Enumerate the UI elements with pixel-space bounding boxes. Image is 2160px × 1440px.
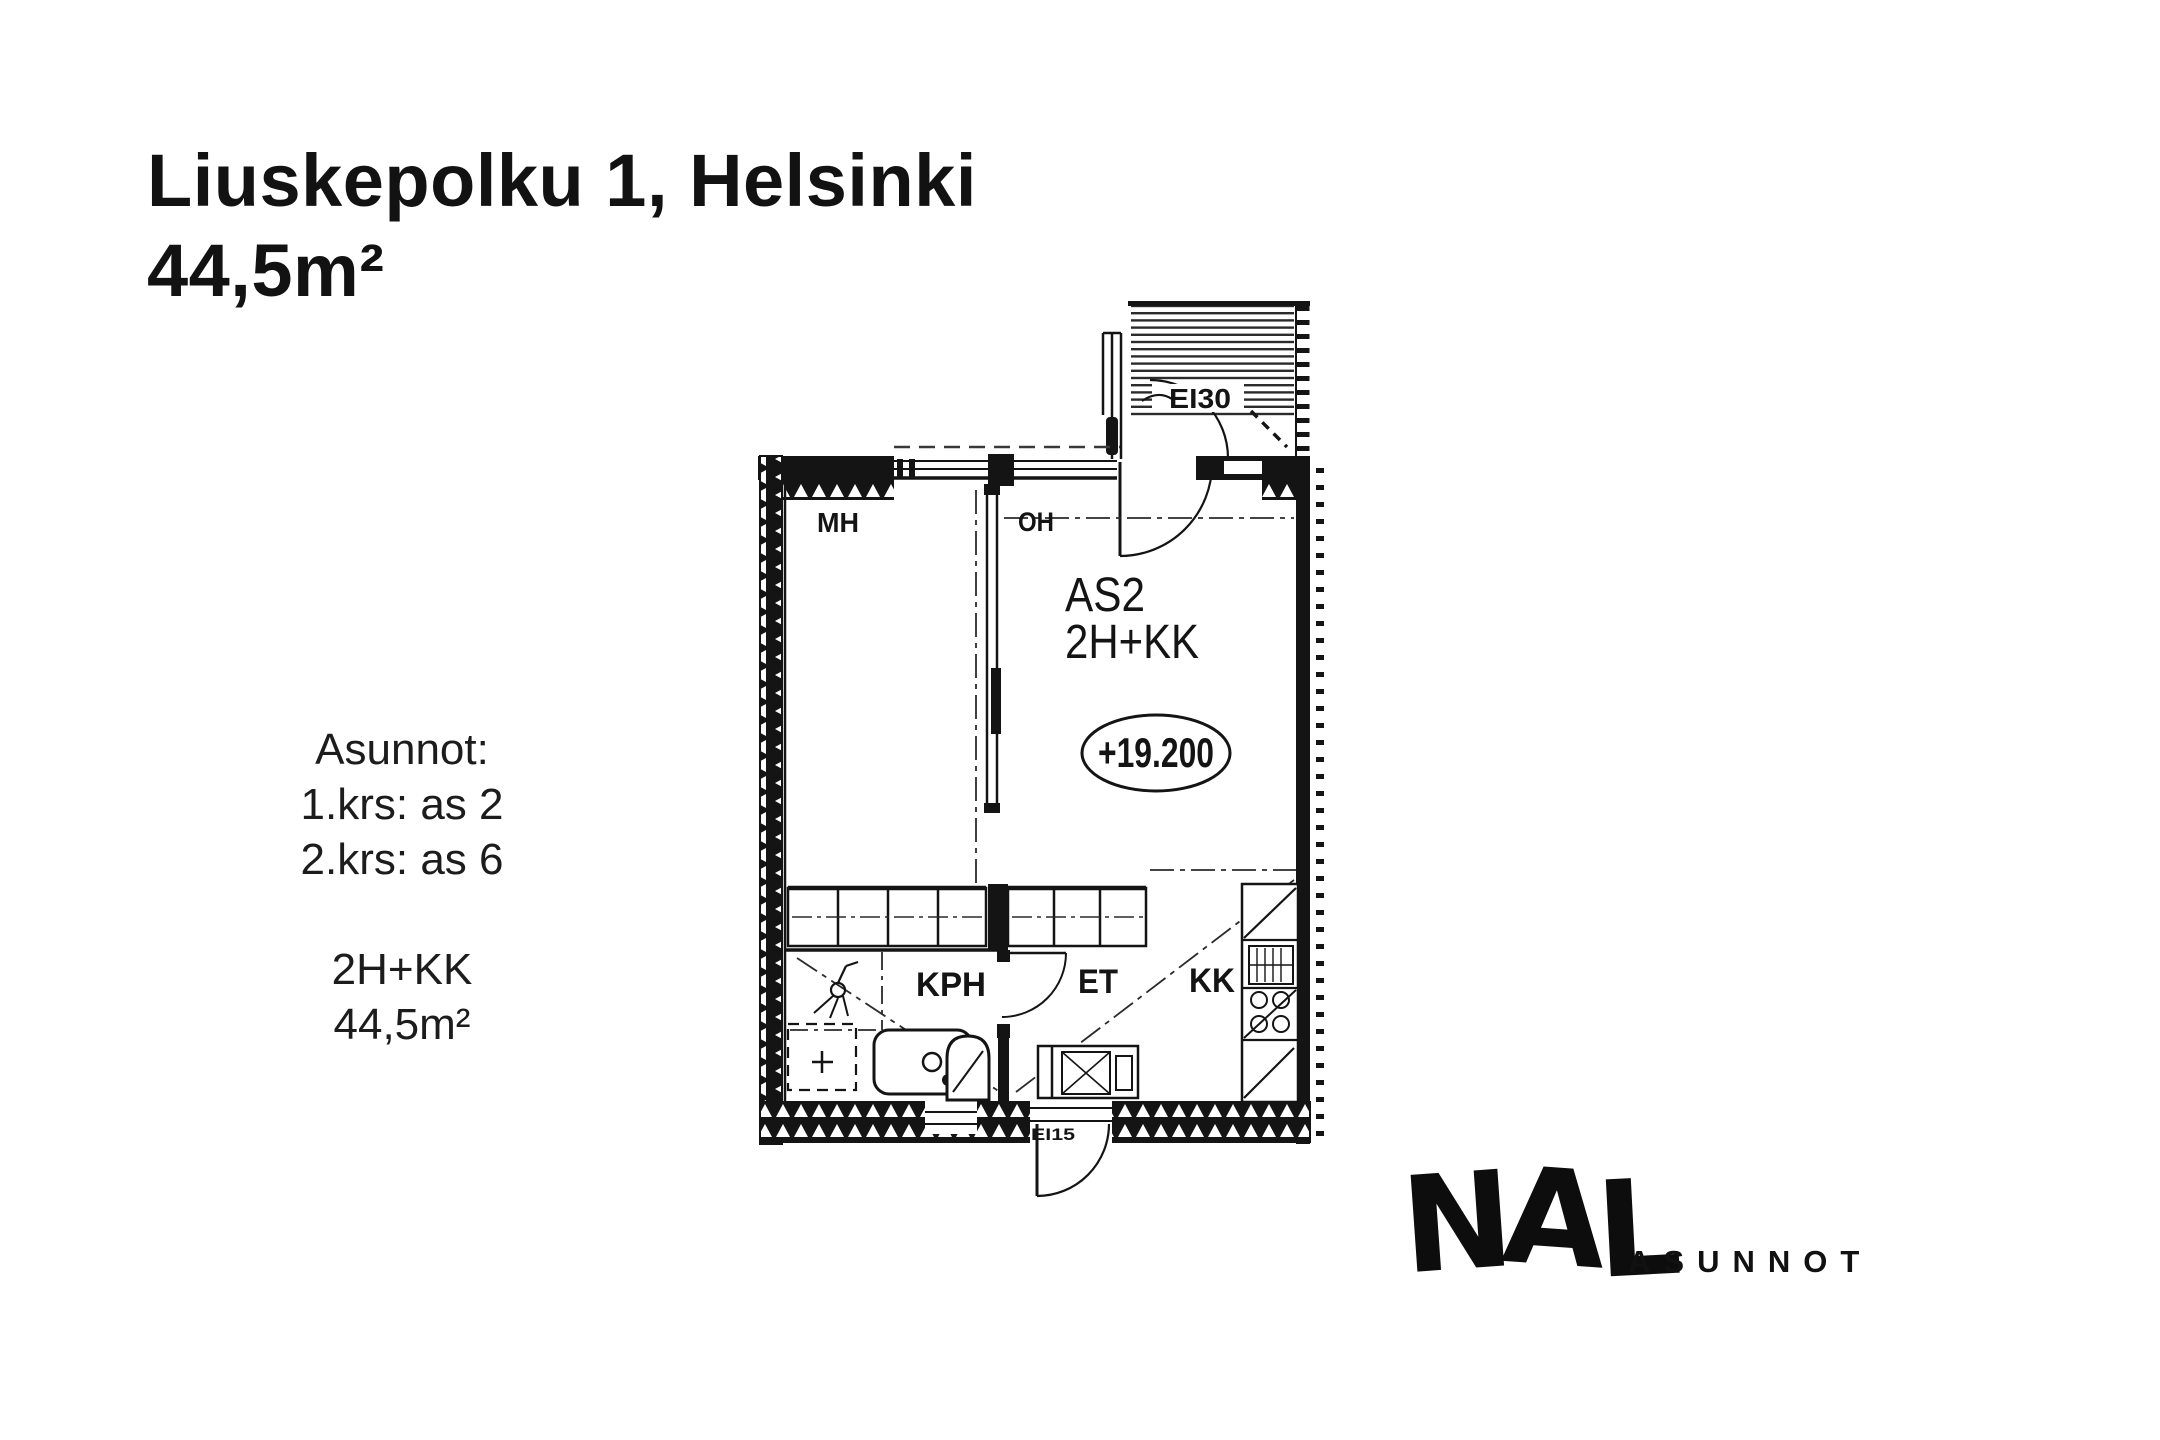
room-label-bathroom: KPH [916, 966, 986, 1004]
partition-mh-oh [976, 484, 1001, 946]
wall-hatch [772, 480, 894, 500]
balcony-top-edge [1128, 301, 1310, 306]
wardrobes-hallway [1008, 888, 1146, 946]
info-line-size: 44,5m² [232, 997, 572, 1052]
window-mullion [909, 459, 915, 479]
info-line-spacer [232, 887, 572, 942]
floor-plan-drawing: EI30 [740, 292, 1340, 1267]
exterior-walls [758, 447, 1320, 1146]
wall-pillar [988, 454, 1014, 486]
info-line-type: 2H+KK [232, 942, 572, 997]
room-label-kitchenette: KK [1189, 962, 1235, 1000]
page: Liuskepolku 1, Helsinki 44,5m² Asunnot: … [0, 0, 2160, 1440]
dash-dot-lines [797, 518, 1296, 1092]
window-notch [1224, 461, 1262, 474]
elevation-value: +19.200 [1098, 729, 1214, 776]
wardrobes-bedroom [788, 888, 986, 946]
info-line-heading: Asunnot: [232, 722, 572, 777]
logo-letter: A [1499, 1150, 1601, 1289]
unit-id-label: AS2 [1065, 569, 1145, 622]
page-title: Liuskepolku 1, Helsinki 44,5m² [147, 136, 977, 316]
logo-wordmark: ASUNNOT [1628, 1244, 1872, 1280]
room-label-bedroom: MH [817, 507, 859, 538]
info-line-floor2: 2.krs: as 6 [232, 832, 572, 887]
info-line-floor1: 1.krs: as 2 [232, 777, 572, 832]
unit-type-label: 2H+KK [1065, 616, 1199, 669]
left-wall [760, 456, 782, 1144]
room-label-hallway: ET [1078, 963, 1118, 1001]
bathroom-door-swing-arc [1002, 953, 1066, 1017]
title-address: Liuskepolku 1, Helsinki [147, 136, 977, 226]
room-label-living-room: OH [1018, 507, 1054, 537]
balcony [1103, 301, 1310, 459]
window-mullion [897, 459, 903, 479]
wall-stub [988, 884, 1008, 950]
window-gap [925, 1098, 977, 1134]
shower-symbol [814, 962, 858, 1018]
logo-letter: N [1397, 1155, 1507, 1295]
balcony-rail-post [1106, 417, 1118, 455]
dishwasher [1038, 1046, 1138, 1098]
fire-rating-balcony-label: EI30 [1169, 383, 1231, 414]
apartment-info: Asunnot: 1.krs: as 2 2.krs: as 6 2H+KK 4… [232, 722, 572, 1052]
fire-rating-entry-label: EI15 [1031, 1125, 1075, 1144]
